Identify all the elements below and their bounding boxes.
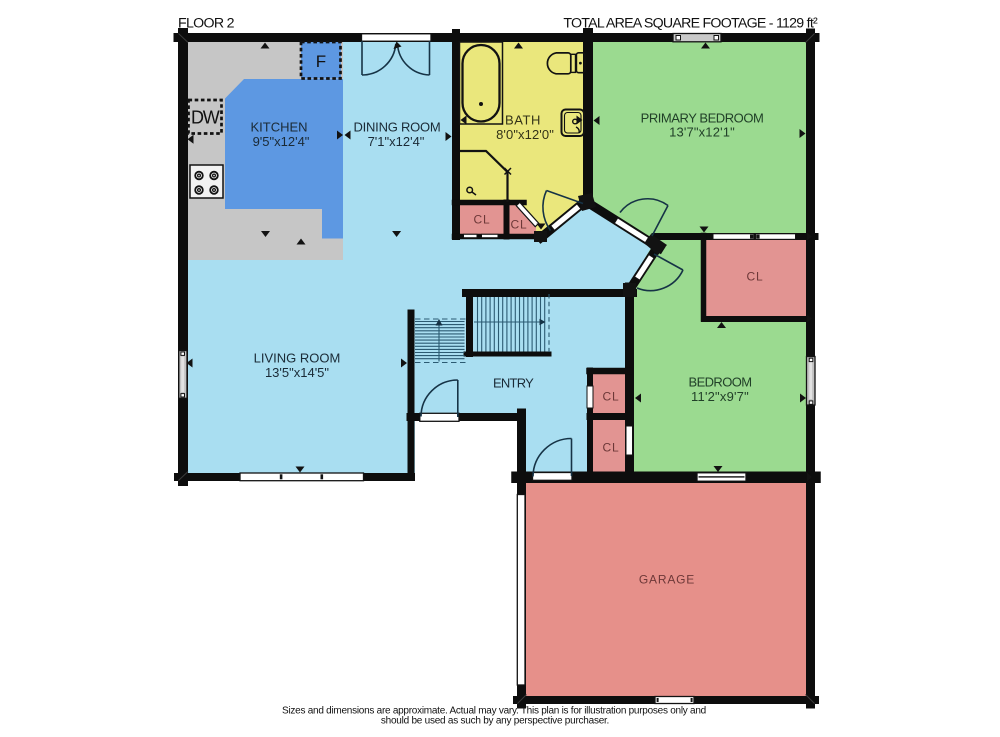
svg-text:CL: CL [603,441,620,455]
svg-text:FLOOR 2: FLOOR 2 [178,16,235,32]
svg-text:ENTRY: ENTRY [493,376,534,391]
svg-text:CL: CL [603,390,620,404]
svg-text:KITCHEN: KITCHEN [250,120,307,135]
svg-text:PRIMARY BEDROOM: PRIMARY BEDROOM [641,111,764,126]
svg-text:7'1"x12'4": 7'1"x12'4" [368,134,425,149]
svg-text:TOTAL AREA SQUARE FOOTAGE - 11: TOTAL AREA SQUARE FOOTAGE - 1129 ft² [563,16,818,32]
svg-text:GARAGE: GARAGE [639,573,695,587]
svg-text:BEDROOM: BEDROOM [689,375,752,390]
svg-text:DINING ROOM: DINING ROOM [353,120,440,135]
svg-text:CL: CL [474,213,491,227]
svg-text:13'5"x14'5": 13'5"x14'5" [265,365,329,380]
svg-text:8'0"x12'0": 8'0"x12'0" [496,127,554,142]
svg-text:LIVING ROOM: LIVING ROOM [254,351,341,366]
svg-text:F: F [316,52,326,71]
svg-text:BATH: BATH [505,113,541,128]
svg-text:9'5"x12'4": 9'5"x12'4" [253,134,310,149]
svg-text:should be used as such by any: should be used as such by any perspectiv… [381,716,609,727]
svg-text:CL: CL [511,218,528,232]
svg-text:11'2"x9'7": 11'2"x9'7" [691,389,749,404]
svg-text:DW: DW [191,108,220,128]
svg-text:CL: CL [747,270,764,284]
svg-text:13'7"x12'1": 13'7"x12'1" [669,125,735,140]
